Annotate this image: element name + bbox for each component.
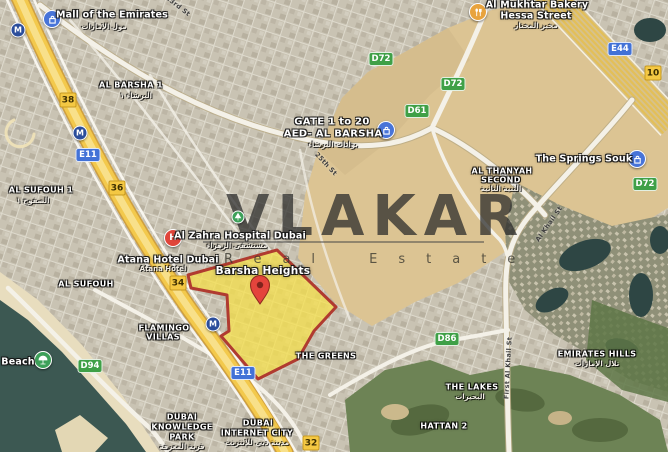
district-label-flamingo-line2: VILLAS <box>146 333 180 342</box>
district-label-al-barsha-1-arabic: البرشاء ١ <box>120 92 152 100</box>
district-label-al-sufouh: AL SUFOUH <box>58 280 113 289</box>
route-badge-d86: D86 <box>435 332 460 346</box>
metro-station-icon[interactable]: M <box>73 126 88 141</box>
district-label-dkp-arabic: قرية المعرفة <box>159 443 204 451</box>
poi-label-bakery-line1: Al Mukhtar Bakery <box>486 0 589 11</box>
poi-label-hotel: Atana Hotel Dubai <box>117 255 218 266</box>
district-label-dic-line1: DUBAI <box>243 419 273 428</box>
exit-badge-38: 38 <box>60 93 77 108</box>
park-icon[interactable] <box>232 211 245 224</box>
district-label-the-lakes: THE LAKES <box>446 383 499 392</box>
district-label-dkp-line1: DUBAI <box>167 413 197 422</box>
exit-badge-36: 36 <box>109 181 126 196</box>
district-label-al-barsha-1: AL BARSHA 1 <box>99 81 163 90</box>
metro-station-icon[interactable]: M <box>11 23 26 38</box>
route-badge-d61: D61 <box>405 104 430 118</box>
district-label-al-thanyah-arabic: الثنية الثانية <box>481 185 522 193</box>
poi-label-bakery-arabic: مخبز المختار <box>514 22 557 30</box>
district-label-dkp-line3: PARK <box>169 433 194 442</box>
metro-station-icon[interactable]: M <box>206 317 221 332</box>
district-label-emirates-hills-arabic: تلال الإمارات <box>575 360 620 368</box>
district-label-dic-arabic: مدينة دبي للإنترنت <box>225 439 289 447</box>
district-label-gate-arabic: بوابات البرشاء <box>308 141 357 149</box>
exit-badge-34: 34 <box>170 276 187 291</box>
beach-icon[interactable] <box>34 351 52 369</box>
district-label-hattan-2: HATTAN 2 <box>420 422 467 431</box>
poi-label-hotel-sub: Atana Hotel <box>140 265 187 273</box>
poi-label-springs-souk: The Springs Souk <box>536 154 633 165</box>
location-pin[interactable] <box>249 274 271 304</box>
poi-label-mall-arabic: مول الإمارات <box>81 23 126 31</box>
district-label-the-greens: THE GREENS <box>296 352 357 361</box>
poi-label-hospital-arabic: مستشفى الزهراء <box>207 242 268 250</box>
district-label-dkp-line2: KNOWLEDGE <box>151 423 212 432</box>
restaurant-bakery-icon[interactable] <box>469 3 487 21</box>
route-badge-d72: D72 <box>633 177 658 191</box>
exit-badge-10: 10 <box>645 66 662 81</box>
district-label-al-sufouh-1-arabic: الصفوح ١ <box>16 197 49 205</box>
route-badge-d94: D94 <box>78 359 103 373</box>
route-badge-d72: D72 <box>369 52 394 66</box>
highlight-label-barsha-heights: Barsha Heights <box>216 265 311 277</box>
district-label-al-thanyah-line2: SECOND <box>481 176 521 185</box>
route-badge-e44: E44 <box>608 42 633 56</box>
route-badge-e11: E11 <box>231 366 256 380</box>
district-label-flamingo-line1: FLAMINGO <box>139 324 190 333</box>
poi-label-hospital: Al Zahra Hospital Dubai <box>174 231 306 242</box>
route-badge-d72: D72 <box>441 77 466 91</box>
district-label-gate-line1: GATE 1 to 20 <box>294 117 369 128</box>
poi-label-mall: Mall of the Emirates <box>56 10 168 21</box>
district-label-al-thanyah-line1: AL THANYAH <box>471 167 532 176</box>
district-label-dic-line2: INTERNET CITY <box>221 429 293 438</box>
exit-badge-32: 32 <box>303 436 320 451</box>
district-label-emirates-hills: EMIRATES HILLS <box>558 350 637 359</box>
district-label-al-sufouh-1: AL SUFOUH 1 <box>9 186 74 195</box>
poi-label-beach: Beach <box>1 357 35 368</box>
poi-label-bakery-line2: Hessa Street <box>500 11 571 22</box>
map-canvas[interactable]: VLAKAR Real Estate 23rd St 25th St Al Kh… <box>0 0 668 452</box>
district-label-gate-line2: AED- AL BARSHA <box>284 129 383 140</box>
district-label-the-lakes-arabic: البحيرات <box>455 393 485 401</box>
route-badge-e11: E11 <box>76 148 101 162</box>
